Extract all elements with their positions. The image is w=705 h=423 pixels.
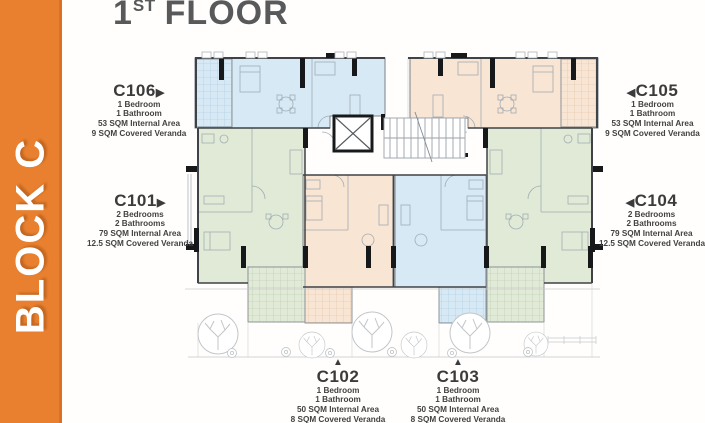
apartment-id: C101: [114, 191, 157, 210]
elevator: [334, 116, 372, 151]
apartment-label-c105: ◀C105 1 Bedroom 1 Bathroom 53 SQM Intern…: [601, 82, 704, 138]
apartment-label-c106: C106▶ 1 Bedroom 1 Bathroom 53 SQM Intern…: [79, 82, 199, 138]
region-c101: [198, 128, 305, 283]
region-c104: [487, 128, 592, 283]
bathrooms-text: 1 Bathroom: [79, 109, 199, 119]
apartment-id: C103: [408, 368, 508, 386]
bedrooms-text: 1 Bedroom: [288, 386, 388, 396]
bedrooms-text: 2 Bedrooms: [599, 210, 704, 220]
veranda-area-text: 12.5 SQM Covered Veranda: [599, 239, 704, 249]
floor-plan-sheet: BLOCK C 1STFLOOR: [0, 0, 705, 423]
bedrooms-text: 2 Bedrooms: [75, 210, 205, 220]
apartment-label-c102: ▲ C102 1 Bedroom 1 Bathroom 50 SQM Inter…: [288, 358, 388, 423]
apartment-id: C105: [636, 81, 679, 100]
veranda-area-text: 9 SQM Covered Veranda: [79, 129, 199, 139]
apartment-id: C104: [635, 191, 678, 210]
staircase: [384, 112, 465, 162]
apartment-label-c103: ▲ C103 1 Bedroom 1 Bathroom 50 SQM Inter…: [408, 358, 508, 423]
arrow-left-icon: ◀: [626, 197, 635, 209]
dimension-ruler: [548, 336, 596, 344]
apartment-label-c104: ◀C104 2 Bedrooms 2 Bathrooms 79 SQM Inte…: [599, 192, 704, 248]
bathrooms-text: 1 Bathroom: [601, 109, 704, 119]
internal-area-text: 53 SQM Internal Area: [79, 119, 199, 129]
internal-area-text: 50 SQM Internal Area: [288, 405, 388, 415]
arrow-right-icon: ▶: [157, 197, 166, 209]
arrow-right-icon: ▶: [156, 87, 165, 99]
veranda-area-text: 8 SQM Covered Veranda: [288, 415, 388, 423]
apartment-label-c101: C101▶ 2 Bedrooms 2 Bathrooms 79 SQM Inte…: [75, 192, 205, 248]
internal-area-text: 79 SQM Internal Area: [599, 229, 704, 239]
apartment-id: C106: [113, 81, 156, 100]
bathrooms-text: 2 Bathrooms: [75, 219, 205, 229]
arrow-left-icon: ◀: [627, 87, 636, 99]
internal-area-text: 53 SQM Internal Area: [601, 119, 704, 129]
bedrooms-text: 1 Bedroom: [408, 386, 508, 396]
veranda-area-text: 9 SQM Covered Veranda: [601, 129, 704, 139]
internal-area-text: 79 SQM Internal Area: [75, 229, 205, 239]
bedrooms-text: 1 Bedroom: [79, 100, 199, 110]
apartment-id: C102: [288, 368, 388, 386]
bathrooms-text: 1 Bathroom: [288, 395, 388, 405]
veranda-area-text: 8 SQM Covered Veranda: [408, 415, 508, 423]
bathrooms-text: 2 Bathrooms: [599, 219, 704, 229]
region-c103: [395, 175, 486, 287]
bathrooms-text: 1 Bathroom: [408, 395, 508, 405]
internal-area-text: 50 SQM Internal Area: [408, 405, 508, 415]
bedrooms-text: 1 Bedroom: [601, 100, 704, 110]
veranda-area-text: 12.5 SQM Covered Veranda: [75, 239, 205, 249]
